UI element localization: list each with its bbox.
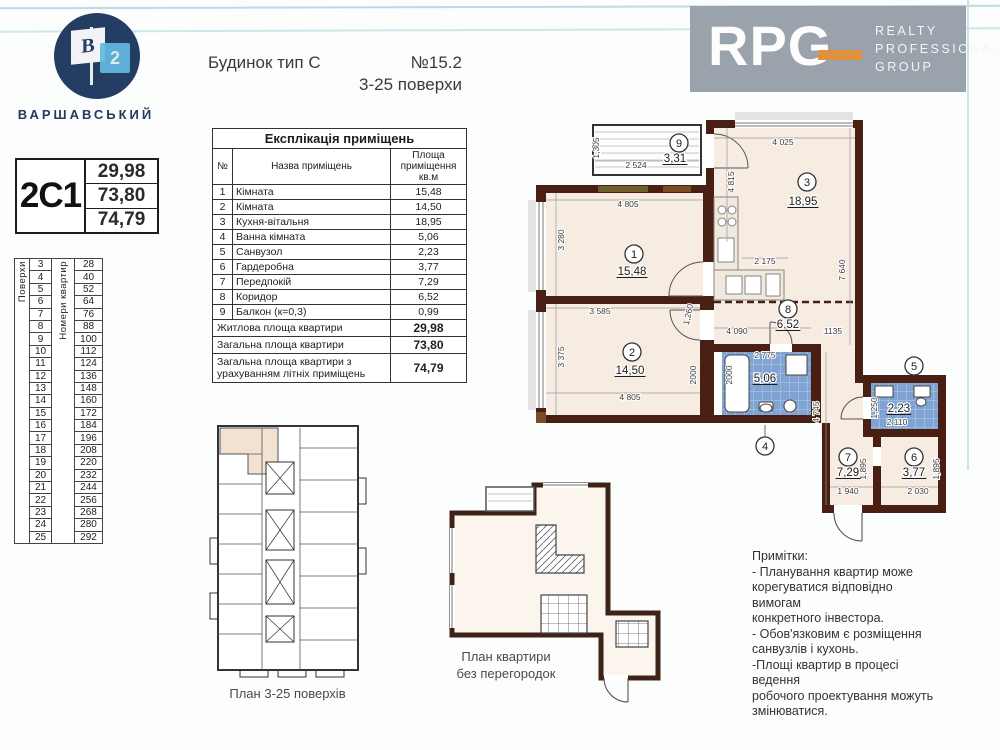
floor-number: 15 (30, 407, 52, 419)
total-label: Загальна площа квартири (213, 337, 391, 354)
open-plan-caption-line2: без перегородок (440, 665, 572, 682)
apartment-number-cell: 280 (75, 519, 103, 531)
apartment-type-code: 2С1 (17, 160, 84, 232)
explication-row: 3 Кухня-вітальня 18,95 (213, 215, 467, 230)
floor-number: 20 (30, 469, 52, 481)
floor-number: 4 (30, 271, 52, 283)
floor-number: 14 (30, 395, 52, 407)
floor-number: 18 (30, 444, 52, 456)
room-no: 7 (213, 275, 233, 290)
room-area-label: 7,29 (837, 467, 859, 479)
floor-number: 16 (30, 420, 52, 432)
room-name: Балкон (к=0,3) (233, 305, 391, 320)
floor-number: 22 (30, 494, 52, 506)
dimension-label: 1 940 (837, 486, 859, 496)
floors-table-row: Поверхи3Номери квартир28 (15, 259, 103, 271)
explication-row: 4 Ванна кімната 5,06 (213, 230, 467, 245)
room-area: 3,77 (391, 260, 467, 275)
apartment-number-cell: 244 (75, 482, 103, 494)
floor-number: 7 (30, 308, 52, 320)
dimension-label: 3 280 (556, 229, 566, 251)
floor-number: 17 (30, 432, 52, 444)
total-value: 74,79 (391, 354, 467, 383)
floor-number: 3 (30, 259, 52, 271)
dimension-label: 2000 (688, 365, 698, 384)
room-area: 7,29 (391, 275, 467, 290)
floor-number: 5 (30, 283, 52, 295)
open-plan-bath-zone (541, 595, 587, 633)
dimension-label: 3 375 (556, 346, 566, 368)
apartment-number-cell: 148 (75, 382, 103, 394)
room-number: 1 (631, 249, 637, 261)
dimension-label: 1135 (824, 326, 843, 336)
room-area: 6,52 (391, 290, 467, 305)
room-area-label: 6,52 (777, 319, 799, 331)
key-plan (200, 418, 375, 686)
notes-line: - Планування квартир може (752, 565, 938, 581)
room-name: Ванна кімната (233, 230, 391, 245)
room-name: Гардеробна (233, 260, 391, 275)
room-name: Кухня-вітальня (233, 215, 391, 230)
col-header-name: Назва приміщень (233, 149, 391, 185)
dimension-label: 4 805 (619, 392, 641, 402)
room-number: 2 (629, 347, 635, 359)
rpg-word-professional: PROFESSIONAL (875, 40, 1000, 58)
explication-row: 5 Санвузол 2,23 (213, 245, 467, 260)
explication-row: 9 Балкон (к=0,3) 0,99 (213, 305, 467, 320)
apartments-col-label: Номери квартир (52, 259, 75, 544)
col-header-no: № (213, 149, 233, 185)
dimension-label: 1,250 (869, 397, 879, 419)
dimension-label: 2 110 (887, 417, 908, 427)
apartment-number-cell: 136 (75, 370, 103, 382)
explication-row: 6 Гардеробна 3,77 (213, 260, 467, 275)
notes-line: корегуватися відповідно вимогам (752, 580, 938, 611)
dimension-label: 1,895 (858, 458, 868, 480)
room-number: 9 (676, 138, 682, 150)
room-no: 5 (213, 245, 233, 260)
floor-number: 23 (30, 506, 52, 518)
total-label: Загальна площа квартири з урахуванням лі… (213, 354, 391, 383)
room-area-label: 15,48 (618, 266, 647, 278)
apartment-number-cell: 196 (75, 432, 103, 444)
explication-row: 7 Передпокій 7,29 (213, 275, 467, 290)
apartment-number-cell: 124 (75, 358, 103, 370)
apartment-number-cell: 220 (75, 457, 103, 469)
dimension-label: 2000 (724, 365, 734, 384)
apartment-number-cell: 112 (75, 345, 103, 357)
room-area-label: 18,95 (789, 196, 818, 208)
dimension-label: 4 745 (811, 401, 821, 423)
explication-row: 8 Коридор 6,52 (213, 290, 467, 305)
explication-total-row: Загальна площа квартири 73,80 (213, 337, 467, 354)
room-area-label: 2,23 (888, 403, 910, 415)
floor-number: 6 (30, 296, 52, 308)
floor-number: 25 (30, 531, 52, 543)
apartment-number-cell: 208 (75, 444, 103, 456)
room-area-label: 3,77 (903, 467, 925, 479)
floors-col-label: Поверхи (15, 259, 30, 544)
apartment-type-card: 2С1 29,98 73,80 74,79 (15, 158, 159, 234)
apartment-number-cell: 184 (75, 420, 103, 432)
floor-number: 10 (30, 345, 52, 357)
room-name: Кімната (233, 185, 391, 200)
apartment-number-cell: 88 (75, 320, 103, 332)
apartment-number-cell: 256 (75, 494, 103, 506)
rpg-letters: RPG (708, 14, 832, 78)
room-area-label: 5,06 (754, 373, 776, 385)
building-type: Будинок тип С (208, 53, 321, 73)
apartment-number-cell: 64 (75, 296, 103, 308)
open-plan-caption: План квартири без перегородок (440, 648, 572, 682)
notes-line: - Обов'язковим є розміщення (752, 627, 938, 643)
dimension-label: 2 030 (907, 486, 929, 496)
explication-total-row: Загальна площа квартири з урахуванням лі… (213, 354, 467, 383)
room-area: 5,06 (391, 230, 467, 245)
floor-number: 9 (30, 333, 52, 345)
floor-number: 24 (30, 519, 52, 531)
floors-apartments-table: Поверхи3Номери квартир284405526647768889… (14, 258, 103, 544)
total-label: Житлова площа квартири (213, 320, 391, 337)
dimension-label: 3 585 (589, 306, 611, 316)
room-no: 9 (213, 305, 233, 320)
dimension-label: 2 775 (754, 350, 776, 360)
notes-line: робочого проектування можуть (752, 689, 938, 705)
explication-table: Експлікація приміщень № Назва приміщень … (212, 128, 467, 383)
room-number: 5 (911, 361, 917, 373)
room-no: 2 (213, 200, 233, 215)
room-number: 3 (804, 177, 810, 189)
room-area: 0,99 (391, 305, 467, 320)
room-area-label: 3,31 (664, 153, 686, 165)
logo-number-square: 2 (100, 43, 130, 73)
key-plan-caption: План 3-25 поверхів (200, 686, 375, 701)
rpg-wordmark: REALTY PROFESSIONAL GROUP (875, 22, 1000, 76)
dimension-label: 1,895 (931, 458, 941, 480)
floors-range: 3-25 поверхи (352, 75, 462, 95)
open-plan-balcony (486, 487, 534, 511)
open-plan-wc-zone (616, 621, 648, 647)
apartment-number-cell: 160 (75, 395, 103, 407)
room-name: Коридор (233, 290, 391, 305)
total-value: 29,98 (391, 320, 467, 337)
developer-logo-icon: B 2 (54, 13, 140, 99)
room-no: 8 (213, 290, 233, 305)
apartment-number-cell: 52 (75, 283, 103, 295)
apartment-number-cell: 40 (75, 271, 103, 283)
dimension-label: 2 175 (754, 256, 776, 266)
rpg-orange-bar-icon (818, 50, 862, 60)
apartment-number-cell: 28 (75, 259, 103, 271)
dimension-label: 4 025 (772, 137, 794, 147)
rpg-logo: RPG REALTY PROFESSIONAL GROUP (690, 6, 966, 92)
explication-title: Експлікація приміщень (213, 129, 467, 149)
notes: Примітки:- Планування квартир можекорегу… (752, 549, 938, 720)
floor-number: 11 (30, 358, 52, 370)
dimension-label: 4 815 (726, 171, 736, 193)
room-area-label: 14,50 (616, 365, 645, 377)
room-no: 3 (213, 215, 233, 230)
dimension-label: 1,305 (591, 137, 601, 159)
rpg-word-group: GROUP (875, 58, 1000, 76)
explication-total-row: Житлова площа квартири 29,98 (213, 320, 467, 337)
dimension-label: 7 640 (837, 259, 847, 281)
notes-line: конкретного інвестора. (752, 611, 938, 627)
room-no: 6 (213, 260, 233, 275)
room-no: 4 (213, 230, 233, 245)
col-header-area: Площа приміщення кв.м (391, 149, 467, 185)
room-name: Санвузол (233, 245, 391, 260)
room-number: 7 (845, 452, 851, 464)
floor-number: 21 (30, 482, 52, 494)
room-number: 4 (762, 441, 768, 453)
floor-number: 12 (30, 370, 52, 382)
open-plan-entrance-door (604, 675, 628, 702)
dimension-label: 2 524 (625, 160, 647, 170)
total-area-value: 73,80 (86, 184, 157, 208)
floor-number: 13 (30, 382, 52, 394)
dimension-label: 4 805 (617, 199, 639, 209)
living-area-value: 29,98 (86, 160, 157, 184)
floor-number: 19 (30, 457, 52, 469)
room-area: 15,48 (391, 185, 467, 200)
apartment-number-cell: 100 (75, 333, 103, 345)
notes-line: -Площі квартир в процесі ведення (752, 658, 938, 689)
explication-row: 1 Кімната 15,48 (213, 185, 467, 200)
apartment-number-cell: 268 (75, 506, 103, 518)
room-number: 6 (911, 452, 917, 464)
dimension-label: 4 090 (726, 326, 748, 336)
explication-row: 2 Кімната 14,50 (213, 200, 467, 215)
floorplan-sheet: { "logo": { "flag_letter": "B", "flag_nu… (0, 0, 1000, 750)
floor-number: 8 (30, 320, 52, 332)
apartment-number-cell: 76 (75, 308, 103, 320)
rpg-word-realty: REALTY (875, 22, 1000, 40)
apartment-number-cell: 232 (75, 469, 103, 481)
developer-name: ВАРШАВСЬКИЙ (8, 107, 164, 122)
apartment-number-cell: 172 (75, 407, 103, 419)
apartment-number-cell: 292 (75, 531, 103, 543)
total-value: 73,80 (391, 337, 467, 354)
room-number: 8 (785, 304, 791, 316)
apartment-areas: 29,98 73,80 74,79 (84, 160, 157, 232)
total-area-with-balcony-value: 74,79 (86, 209, 157, 232)
room-area: 14,50 (391, 200, 467, 215)
room-name: Передпокій (233, 275, 391, 290)
notes-line: санвузлів і кухонь. (752, 642, 938, 658)
open-plan-caption-line1: План квартири (440, 648, 572, 665)
room-area: 18,95 (391, 215, 467, 230)
apartment-number: №15.2 (390, 53, 462, 73)
room-no: 1 (213, 185, 233, 200)
notes-title: Примітки: (752, 549, 938, 565)
room-area: 2,23 (391, 245, 467, 260)
room-name: Кімната (233, 200, 391, 215)
notes-line: змінюватися. (752, 704, 938, 720)
